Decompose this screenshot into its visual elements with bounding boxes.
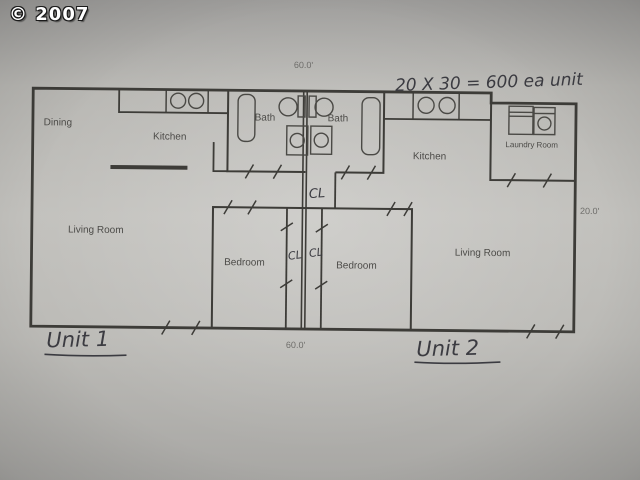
- kitchen1-island-counter: [110, 167, 187, 168]
- room-label-bath-unit1: Bath: [255, 112, 276, 123]
- room-label-kitchen-unit1: Kitchen: [153, 131, 186, 142]
- bedroom-block-walls: [212, 207, 412, 330]
- sink-icon: [171, 93, 204, 108]
- bath2-walls: [335, 91, 384, 172]
- copyright-watermark: © 2007: [9, 4, 89, 25]
- sink-icon: [418, 97, 455, 113]
- toilet-icon: [279, 96, 305, 117]
- handwritten-unit2: Unit 2: [416, 336, 479, 362]
- room-label-dining: Dining: [44, 117, 72, 128]
- unit2-underline: [414, 361, 500, 364]
- room-label-bedroom-unit1: Bedroom: [224, 257, 265, 268]
- floor-plan-photo: © 2007: [0, 0, 640, 480]
- interior-walls: [109, 89, 576, 332]
- dimension-top: 60.0': [294, 60, 314, 70]
- kitchen1-sink-box: [166, 90, 208, 113]
- kitchen1-counter-wall: [119, 89, 228, 113]
- kitchen2-sink-box: [413, 92, 459, 119]
- handwritten-area-note: 20 X 30 = 600 ea unit: [395, 70, 585, 96]
- unit1-underline: [44, 354, 126, 356]
- handwritten-notes: 20 X 30 = 600 ea unit Unit 1 Unit 2 CL C…: [44, 64, 584, 365]
- room-label-kitchen-unit2: Kitchen: [413, 151, 446, 162]
- room-label-bedroom-unit2: Bedroom: [336, 260, 377, 271]
- hall-stub-wall: [213, 142, 227, 171]
- floor-plan-drawing: Dining Kitchen Bath Bath Kitchen Laundry…: [0, 0, 640, 480]
- bathtub-icon: [238, 94, 255, 141]
- room-label-living-unit2: Living Room: [455, 248, 511, 260]
- bath1-walls: [227, 90, 306, 172]
- washing-machine-icon: [534, 107, 555, 134]
- handwritten-closet-unit1: CL: [287, 248, 302, 263]
- handwritten-unit1: Unit 1: [46, 327, 109, 353]
- room-label-laundry: Laundry Room: [505, 140, 558, 150]
- washer-icon: [311, 126, 332, 154]
- dimension-right: 20.0': [580, 206, 600, 216]
- dryer-icon: [509, 106, 533, 134]
- dimension-bottom: 60.0': [286, 340, 306, 350]
- washer-icon: [287, 126, 308, 155]
- handwritten-closet-hall: CL: [308, 186, 325, 202]
- kitchen2-counter-wall: [384, 119, 491, 120]
- bathtub-icon: [362, 98, 381, 155]
- room-label-living-unit1: Living Room: [68, 225, 124, 237]
- handwritten-closet-unit2: CL: [308, 245, 323, 260]
- room-label-bath-unit2: Bath: [328, 113, 349, 124]
- closet2-wall: [321, 208, 322, 329]
